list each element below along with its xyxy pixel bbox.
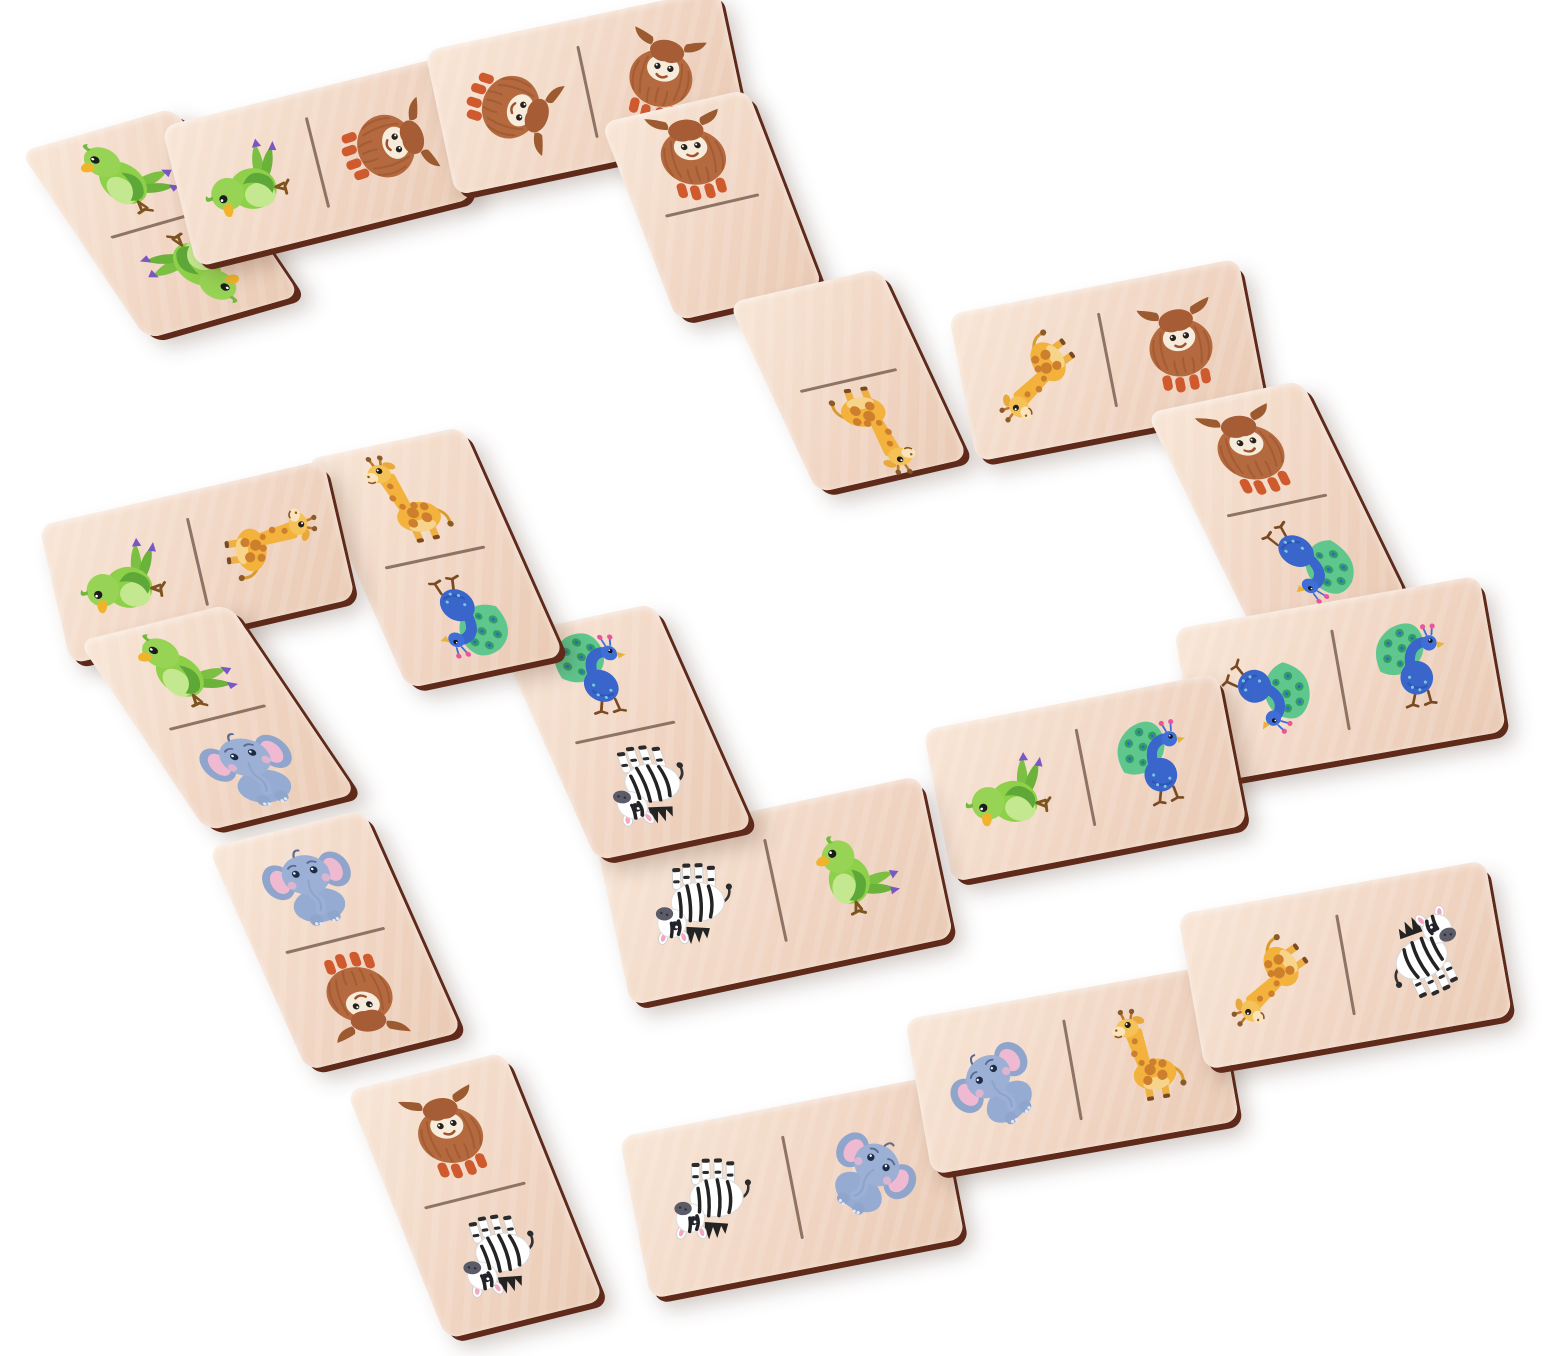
domino-tile-5-blank-giraffe[interactable]: Giraffe xyxy=(728,268,968,493)
tile-half-elephant: Elephant xyxy=(905,992,1085,1174)
zebra-icon: Zebra xyxy=(434,1201,566,1315)
peacock-icon: Peacock xyxy=(1100,703,1220,823)
domino-tile-9-parrot-peacock[interactable]: Parrot Peacock xyxy=(923,672,1247,881)
parrot-icon: Parrot xyxy=(107,615,263,724)
zebra-icon: Zebra xyxy=(582,734,719,844)
tile-half-giraffe: Giraffe xyxy=(1178,887,1358,1069)
yak-icon: Yak xyxy=(381,1072,519,1192)
giraffe-icon: Giraffe xyxy=(338,441,480,557)
parrot-icon: Parrot xyxy=(68,522,182,636)
giraffe-icon: Giraffe xyxy=(801,373,939,484)
yak-icon: Yak xyxy=(449,43,578,172)
tile-half-giraffe: Giraffe xyxy=(948,287,1120,462)
giraffe-icon: Giraffe xyxy=(211,488,326,603)
zebra-icon: Zebra xyxy=(661,1151,765,1255)
zebra-icon: Zebra xyxy=(641,855,746,960)
domino-tile-16-yak-zebra[interactable]: Yak Zebra xyxy=(346,1051,603,1338)
yak-icon: Yak xyxy=(292,940,428,1053)
domino-tile-15-elephant-yak[interactable]: Elephant Yak xyxy=(208,809,462,1070)
giraffe-icon: Giraffe xyxy=(963,303,1105,445)
tile-half-yak: Yak xyxy=(425,20,601,196)
elephant-icon: Elephant xyxy=(239,824,380,943)
giraffe-icon: Giraffe xyxy=(1090,997,1208,1115)
peacock-icon: Peacock xyxy=(1362,611,1473,722)
yak-icon: Yak xyxy=(322,80,452,210)
parrot-icon: Parrot xyxy=(195,128,299,232)
domino-tile-19-giraffe-zebra[interactable]: Giraffe Zebra xyxy=(1178,860,1513,1070)
domino-scene: Parrot Parrot Parrot Yak Yak Yak Yak Gir… xyxy=(0,0,1551,1356)
tile-half-peacock: Peacock xyxy=(1072,672,1247,852)
yak-icon: Yak xyxy=(1177,392,1323,508)
yak-icon: Yak xyxy=(1120,286,1240,406)
tile-half-zebra: Zebra xyxy=(1333,860,1513,1042)
domino-tile-17-zebra-elephant[interactable]: Zebra Elephant xyxy=(619,1075,965,1298)
elephant-icon: Elephant xyxy=(923,1012,1067,1156)
domino-tile-2-parrot-yak[interactable]: Parrot Yak xyxy=(161,57,473,267)
tile-half-zebra: Zebra xyxy=(619,1106,806,1298)
tile-half-parrot: Parrot xyxy=(923,701,1098,881)
domino-tile-14-parrot-elephant[interactable]: Parrot Elephant xyxy=(78,603,356,830)
peacock-icon: Peacock xyxy=(390,557,532,673)
domino-tile-18-elephant-giraffe[interactable]: Elephant Giraffe xyxy=(905,965,1240,1175)
giraffe-icon: Giraffe xyxy=(1196,908,1338,1050)
tile-half-parrot: Parrot xyxy=(759,775,953,970)
domino-tile-7-yak-peacock[interactable]: Yak Peacock xyxy=(1147,380,1408,631)
zebra-icon: Zebra xyxy=(1355,884,1491,1020)
elephant-icon: Elephant xyxy=(800,1101,942,1243)
parrot-icon: Parrot xyxy=(796,812,917,933)
domino-tile-4-yak-blank[interactable]: Yak xyxy=(601,89,823,321)
yak-icon: Yak xyxy=(628,99,758,211)
parrot-icon: Parrot xyxy=(952,733,1069,850)
tile-half-peacock: Peacock xyxy=(1328,575,1507,757)
